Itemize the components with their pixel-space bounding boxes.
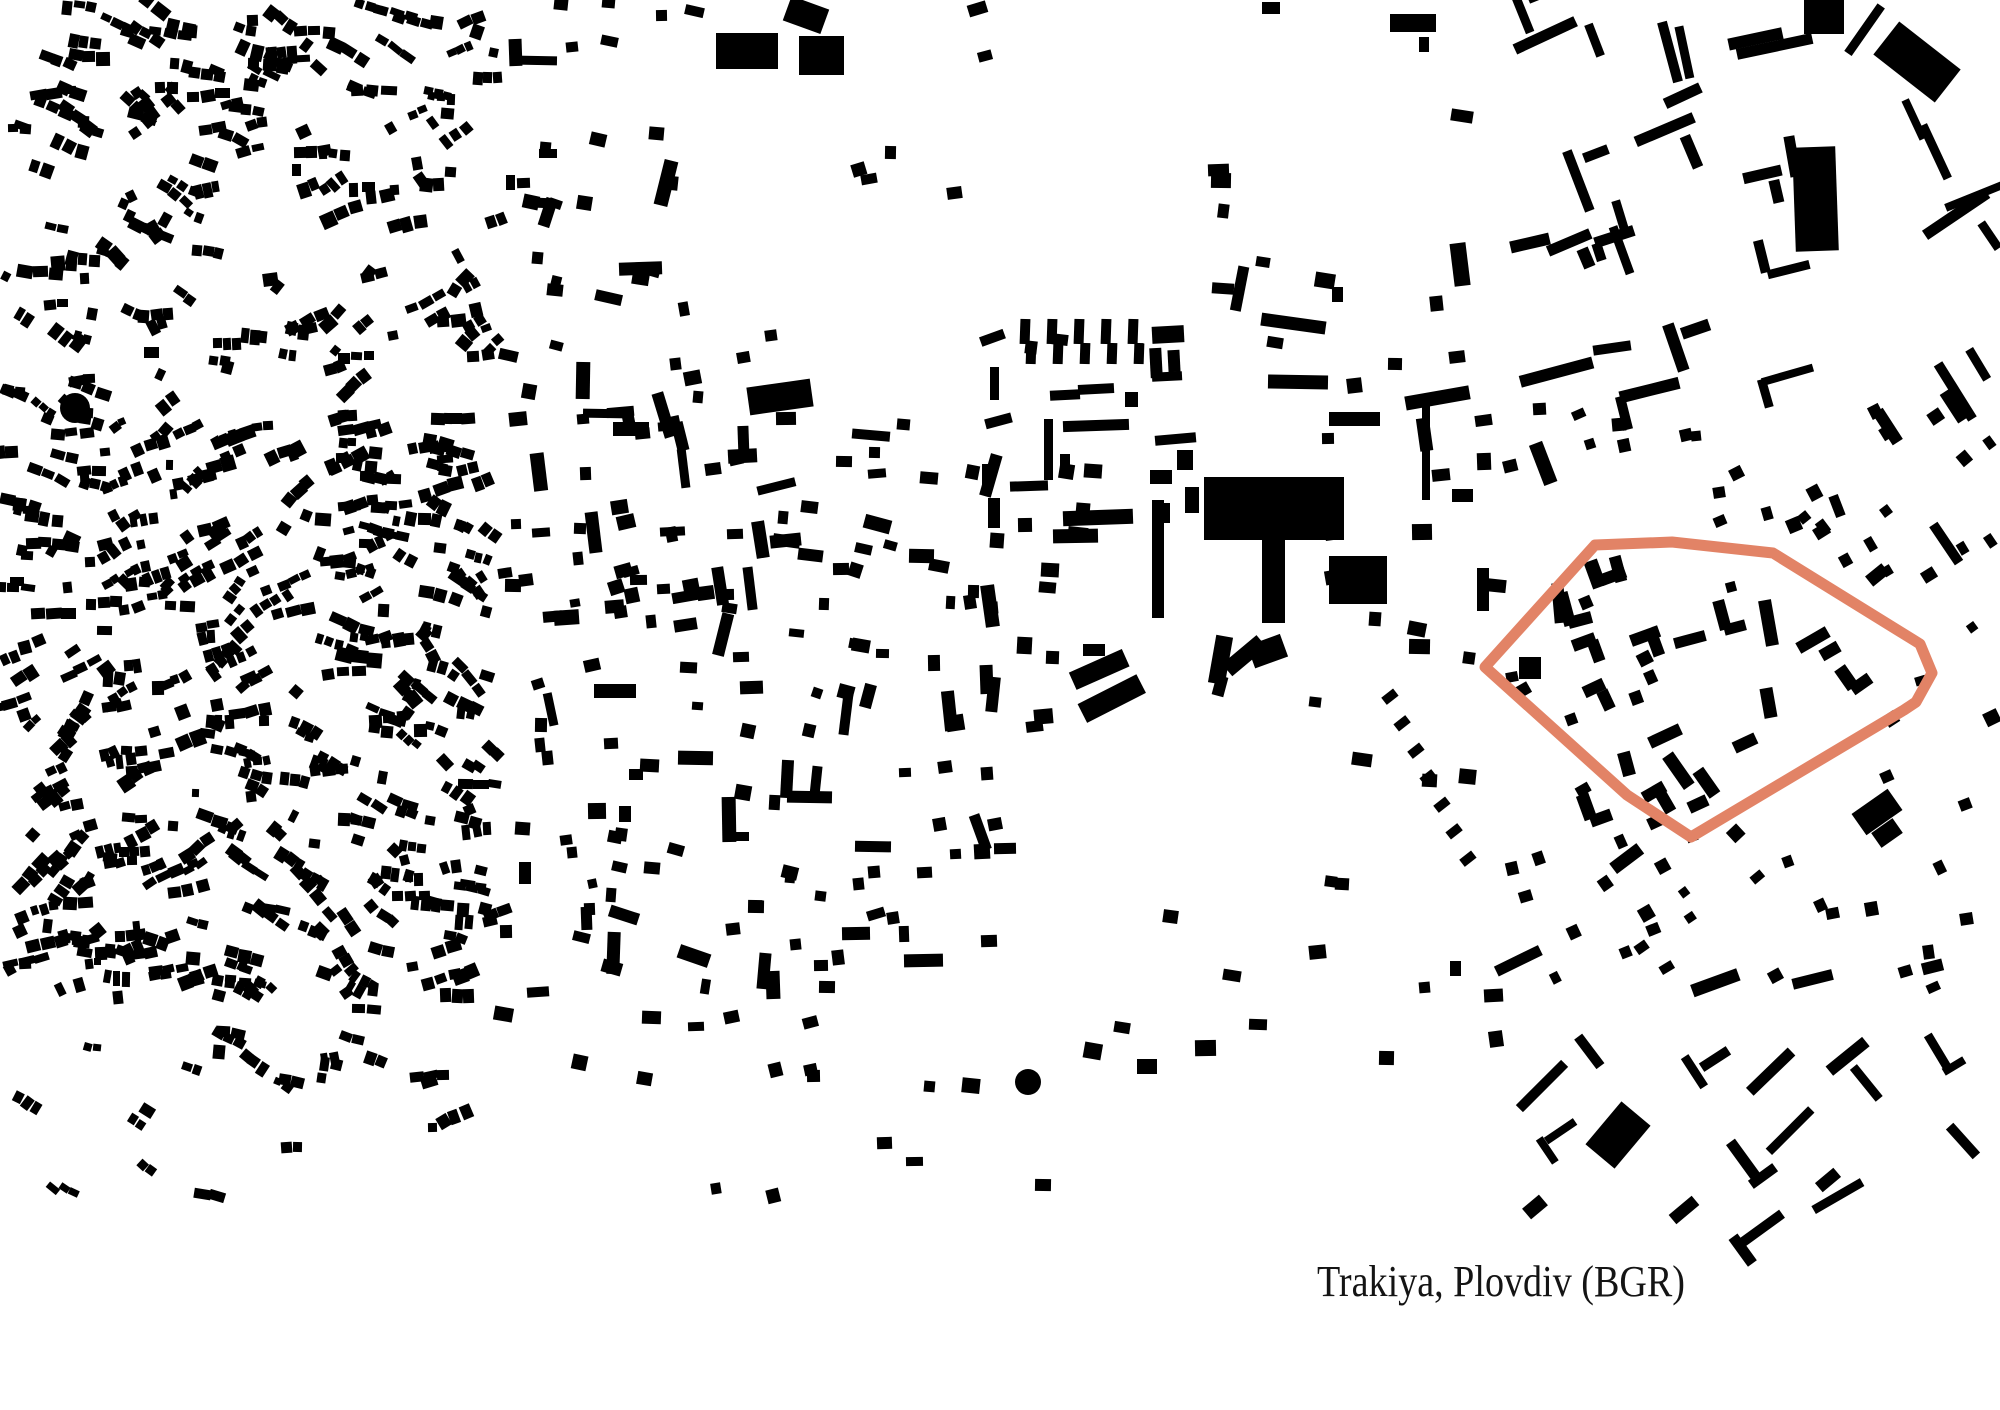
svg-text:Trakiya, Plovdiv (BGR): Trakiya, Plovdiv (BGR) (1317, 1257, 1685, 1306)
